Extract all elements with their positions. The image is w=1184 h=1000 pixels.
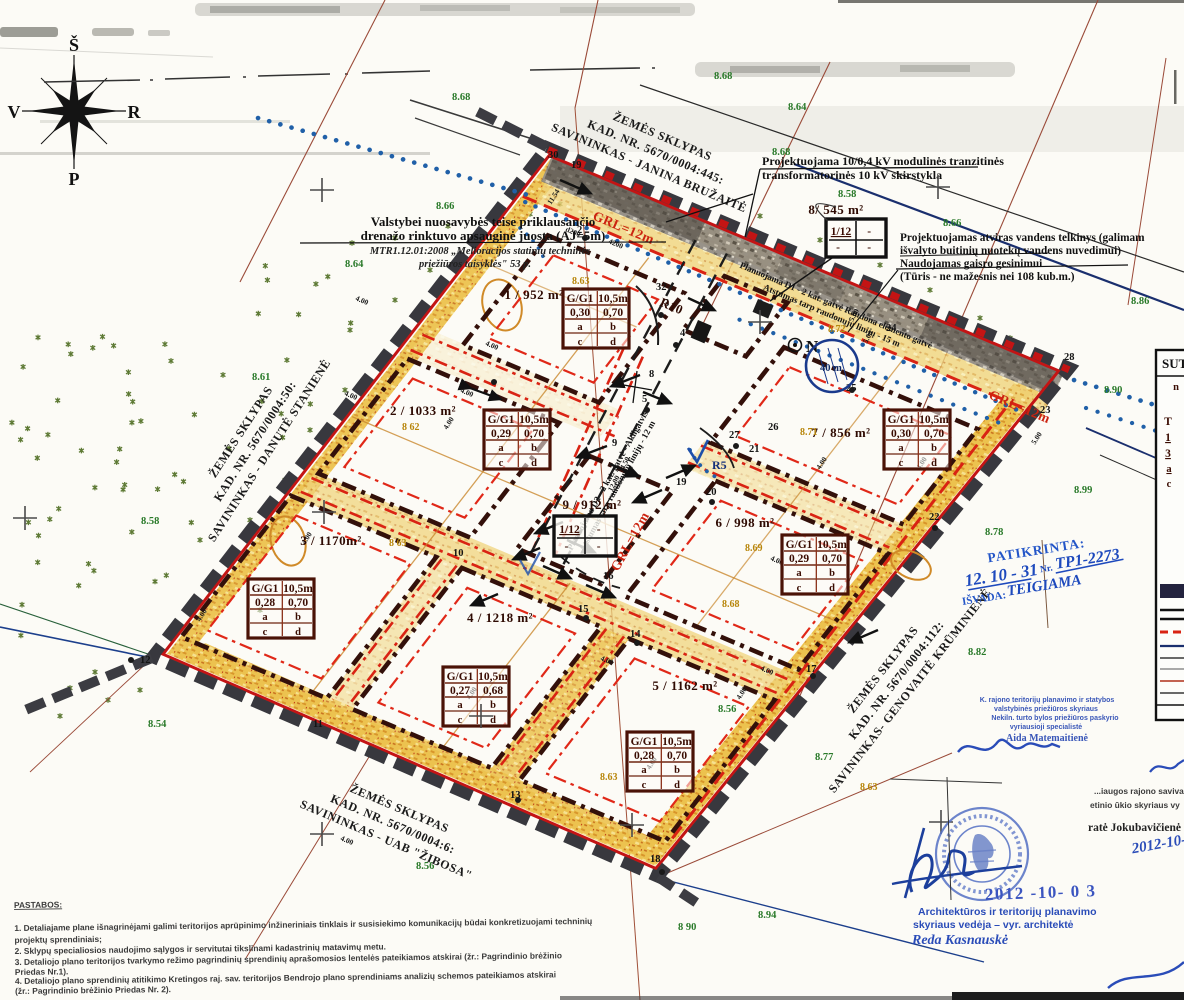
svg-text:8.61: 8.61 (252, 372, 270, 383)
svg-text:ratė Jokubavičienė: ratė Jokubavičienė (1088, 822, 1181, 834)
svg-text:b: b (490, 700, 496, 711)
svg-text:c: c (1167, 479, 1172, 490)
svg-text:30: 30 (548, 150, 559, 161)
svg-text:0,29: 0,29 (789, 553, 809, 565)
svg-text:5: 5 (642, 394, 647, 405)
svg-text:a: a (262, 612, 268, 623)
svg-text:8.68: 8.68 (722, 599, 740, 610)
svg-text:Valstybei nuosavybės teise pri: Valstybei nuosavybės teise priklausančio (371, 214, 596, 229)
svg-text:20: 20 (706, 487, 717, 498)
svg-text:G/G1: G/G1 (567, 293, 594, 305)
svg-text:-: - (597, 541, 601, 553)
svg-text:Nekiln. turto bylos priežiūros: Nekiln. turto bylos priežiūros paskyrio (991, 715, 1118, 722)
svg-text:1/12: 1/12 (559, 524, 580, 536)
svg-text:1/12: 1/12 (831, 226, 852, 238)
svg-text:21: 21 (749, 444, 760, 455)
svg-text:c: c (263, 627, 268, 638)
svg-text:a: a (796, 568, 802, 579)
svg-text:skyriaus vedėja – vyr. archite: skyriaus vedėja – vyr. architektė (913, 919, 1074, 931)
svg-text:c: c (642, 780, 647, 791)
svg-text:40 m: 40 m (820, 363, 842, 374)
svg-text:a: a (498, 443, 504, 454)
svg-text:11: 11 (313, 719, 323, 730)
svg-text:14: 14 (630, 629, 641, 640)
svg-text:0,30: 0,30 (891, 428, 911, 440)
svg-text:8.99: 8.99 (1074, 485, 1092, 496)
svg-text:...iaugos rajono savivald: ...iaugos rajono savivald (1094, 786, 1184, 796)
svg-text:d: d (674, 780, 680, 791)
svg-text:8.86: 8.86 (1131, 296, 1149, 307)
svg-text:d: d (931, 458, 937, 469)
svg-text:a: a (641, 765, 647, 776)
svg-text:vyriausioji specialistė: vyriausioji specialistė (1010, 724, 1082, 731)
svg-text:K. rajono teritorijų planavimo: K. rajono teritorijų planavimo ir statyb… (980, 697, 1115, 704)
svg-text:8.64: 8.64 (345, 259, 364, 270)
svg-text:P: P (69, 169, 80, 189)
svg-text:8.78: 8.78 (985, 527, 1003, 538)
svg-text:8.71: 8.71 (800, 427, 818, 438)
svg-text:9: 9 (612, 438, 617, 449)
svg-text:15: 15 (578, 604, 589, 615)
svg-text:(žr.: Pagrindinio brėžinio Pri: (žr.: Pagrindinio brėžinio Priedas Nr. 2… (15, 984, 171, 996)
svg-text:8.64: 8.64 (788, 102, 807, 113)
svg-text:0,28: 0,28 (255, 597, 275, 609)
svg-text:4: 4 (680, 328, 686, 339)
svg-text:8.90: 8.90 (1104, 385, 1122, 396)
svg-text:0,70: 0,70 (288, 597, 308, 609)
svg-text:8.72: 8.72 (828, 324, 846, 335)
svg-text:-: - (597, 524, 601, 536)
svg-text:8.94: 8.94 (758, 910, 777, 921)
svg-text:b: b (674, 765, 680, 776)
svg-text:d: d (829, 583, 835, 594)
svg-text:PASTABOS:: PASTABOS: (14, 899, 62, 910)
svg-text:Reda Kasnauskė: Reda Kasnauskė (911, 933, 1008, 948)
svg-text:b: b (829, 568, 835, 579)
svg-text:Š: Š (69, 34, 79, 55)
svg-text:G/G1: G/G1 (447, 671, 474, 683)
svg-text:32: 32 (656, 282, 667, 293)
svg-text:transformatorinės 10 kV skirst: transformatorinės 10 kV skirstykla (762, 168, 942, 182)
svg-text:d: d (531, 458, 537, 469)
svg-text:1 / 952 m²: 1 / 952 m² (504, 287, 563, 302)
svg-text:c: c (458, 715, 463, 726)
svg-text:3: 3 (1165, 448, 1171, 460)
svg-text:0,29: 0,29 (491, 428, 511, 440)
svg-text:8.58: 8.58 (838, 189, 856, 200)
svg-text:Nr.: Nr. (1039, 564, 1053, 576)
svg-text:10,5m: 10,5m (662, 736, 692, 748)
svg-text:8 62: 8 62 (402, 422, 420, 433)
svg-text:d: d (610, 337, 616, 348)
svg-text:(Tūris - ne mažesnis nei 108 k: (Tūris - ne mažesnis nei 108 kub.m.) (900, 271, 1075, 283)
svg-text:a: a (457, 700, 463, 711)
svg-text:c: c (578, 337, 583, 348)
svg-text:4 / 1218 m²: 4 / 1218 m² (467, 610, 533, 625)
svg-text:0,27: 0,27 (450, 685, 470, 697)
svg-text:28: 28 (1064, 352, 1075, 363)
svg-text:-: - (836, 242, 840, 254)
svg-text:5 / 1162 m²: 5 / 1162 m² (652, 678, 717, 693)
svg-text:10,5m: 10,5m (478, 671, 508, 683)
svg-text:8.68: 8.68 (452, 92, 470, 103)
svg-text:9 / 912 m²: 9 / 912 m² (562, 497, 621, 512)
svg-text:d: d (295, 627, 301, 638)
svg-text:6 / 998 m²: 6 / 998 m² (715, 515, 774, 530)
svg-text:a: a (1166, 464, 1172, 475)
svg-text:8.69: 8.69 (745, 543, 763, 554)
svg-text:19: 19 (571, 160, 582, 171)
svg-text:10,5m: 10,5m (919, 414, 949, 426)
svg-text:8: 8 (649, 369, 654, 380)
svg-text:b: b (931, 443, 937, 454)
svg-text:Projektuojama 10/0,4 kV moduli: Projektuojama 10/0,4 kV modulinės tranzi… (762, 154, 1004, 168)
svg-text:0,70: 0,70 (822, 553, 842, 565)
svg-text:c: c (499, 458, 504, 469)
svg-text:27: 27 (729, 430, 740, 441)
svg-text:G/G1: G/G1 (888, 414, 915, 426)
svg-text:26: 26 (768, 422, 779, 433)
svg-text:8.66: 8.66 (436, 201, 454, 212)
svg-text:10,5m: 10,5m (598, 293, 628, 305)
svg-text:8.68: 8.68 (714, 71, 732, 82)
svg-text:8.77: 8.77 (815, 752, 833, 763)
svg-text:G/G1: G/G1 (488, 414, 515, 426)
svg-text:8.63: 8.63 (600, 772, 618, 783)
svg-text:0,70: 0,70 (924, 428, 944, 440)
svg-text:G/G1: G/G1 (786, 539, 813, 551)
svg-text:18: 18 (650, 854, 661, 865)
svg-text:-: - (564, 541, 568, 553)
svg-text:b: b (531, 443, 537, 454)
svg-text:MTR1.12.01:2008 „Melioracijos: MTR1.12.01:2008 „Melioracijos statinių t… (369, 246, 590, 257)
svg-text:0,68: 0,68 (483, 685, 503, 697)
svg-text:8.82: 8.82 (968, 647, 986, 658)
svg-text:8.63: 8.63 (860, 782, 878, 793)
svg-text:G/G1: G/G1 (252, 583, 279, 595)
svg-text:G/G1: G/G1 (631, 736, 658, 748)
svg-text:8.54: 8.54 (148, 719, 167, 730)
svg-text:0,28: 0,28 (634, 750, 654, 762)
svg-text:16: 16 (603, 571, 614, 582)
svg-text:priežiūros taisyklės" 53 p.: priežiūros taisyklės" 53 p. (418, 259, 531, 270)
svg-text:c: c (797, 583, 802, 594)
svg-text:Aida Matemaitienė: Aida Matemaitienė (1006, 733, 1088, 744)
svg-text:10,5m: 10,5m (817, 539, 847, 551)
svg-text:12: 12 (140, 655, 151, 666)
svg-text:SUT: SUT (1162, 356, 1184, 371)
svg-text:10,5m: 10,5m (283, 583, 313, 595)
svg-text:drenažo rinktuvo apsauginė juo: drenažo rinktuvo apsauginė juosta (AJ=5m… (361, 228, 606, 243)
svg-text:-: - (867, 242, 871, 254)
svg-text:b: b (295, 612, 301, 623)
svg-text:10: 10 (453, 548, 464, 559)
svg-text:8.58: 8.58 (141, 516, 159, 527)
svg-text:b: b (610, 322, 616, 333)
svg-text:c: c (899, 458, 904, 469)
svg-text:8 90: 8 90 (678, 922, 696, 933)
svg-text:8.63: 8.63 (572, 276, 590, 287)
svg-text:Architektūros ir teritorijų pl: Architektūros ir teritorijų planavimo (918, 906, 1097, 918)
svg-text:0,70: 0,70 (524, 428, 544, 440)
svg-text:7 / 856 m²: 7 / 856 m² (811, 425, 870, 440)
svg-text:a: a (898, 443, 904, 454)
svg-text:Projektuojamas atviras vandens: Projektuojamas atviras vandens telkinys … (900, 232, 1145, 244)
svg-text:19: 19 (676, 477, 687, 488)
svg-text:8.66: 8.66 (943, 218, 961, 229)
svg-text:0,70: 0,70 (667, 750, 687, 762)
svg-text:3 / 1170m²: 3 / 1170m² (300, 533, 362, 548)
svg-text:V: V (8, 102, 21, 122)
svg-text:R5: R5 (712, 458, 727, 472)
svg-text:R: R (128, 102, 142, 122)
svg-text:0,30: 0,30 (570, 307, 590, 319)
svg-text:17: 17 (806, 664, 817, 675)
svg-text:0,70: 0,70 (603, 307, 623, 319)
svg-text:8 63: 8 63 (389, 538, 407, 549)
svg-text:valstybinės priežiūros skyriau: valstybinės priežiūros skyriaus (994, 706, 1098, 713)
svg-text:8.56: 8.56 (718, 704, 736, 715)
svg-text:22: 22 (929, 512, 940, 523)
svg-text:2 / 1033 m²: 2 / 1033 m² (390, 403, 456, 418)
svg-text:etinio ūkio skyriaus vy: etinio ūkio skyriaus vy (1090, 800, 1180, 810)
svg-text:10,5m: 10,5m (519, 414, 549, 426)
svg-text:n: n (1173, 382, 1179, 393)
svg-text:a: a (577, 322, 583, 333)
svg-text:projektų sprendiniais;: projektų sprendiniais; (14, 934, 102, 945)
svg-text:-: - (867, 226, 871, 238)
svg-text:T: T (1164, 416, 1172, 428)
svg-text:2012 -10- 0 3: 2012 -10- 0 3 (985, 881, 1097, 904)
svg-text:1: 1 (1165, 432, 1171, 444)
